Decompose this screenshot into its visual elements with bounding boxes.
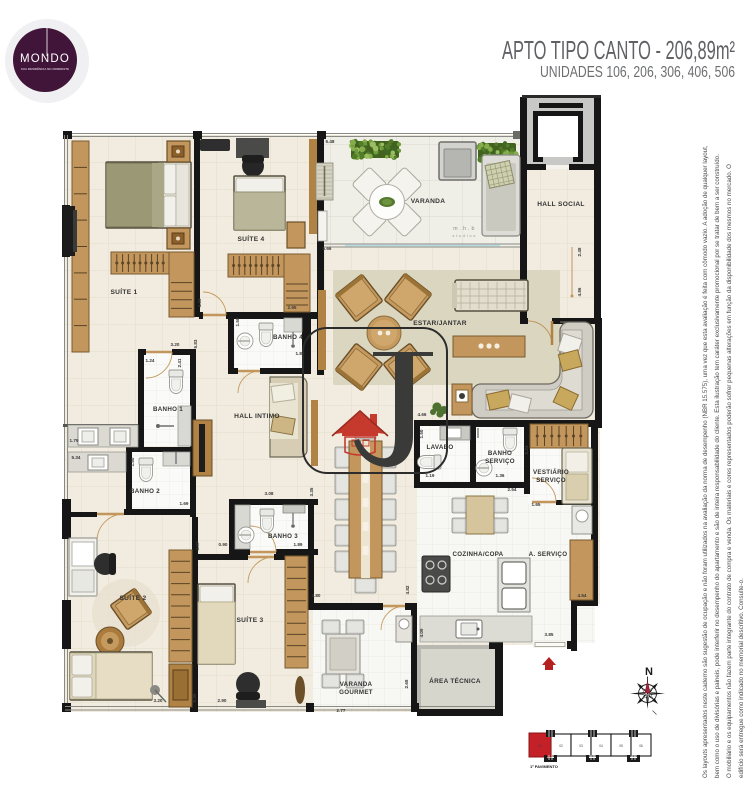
svg-text:VARANDA: VARANDA [340, 681, 373, 688]
svg-text:2.95: 2.95 [288, 305, 297, 310]
svg-text:02: 02 [559, 744, 563, 748]
svg-text:2.68: 2.68 [404, 679, 409, 688]
svg-text:2.24: 2.24 [524, 445, 529, 454]
svg-text:N: N [645, 666, 653, 678]
svg-text:1.19: 1.19 [426, 473, 435, 478]
svg-text:4.66: 4.66 [418, 412, 427, 417]
svg-text:4.54: 4.54 [578, 593, 587, 598]
svg-text:LAVABO: LAVABO [426, 444, 453, 451]
svg-text:1.79: 1.79 [70, 438, 79, 443]
svg-text:3.08: 3.08 [265, 491, 274, 496]
svg-text:UNIDADES 106, 206, 306, 406, 5: UNIDADES 106, 206, 306, 406, 506 [540, 64, 735, 81]
svg-text:1.36: 1.36 [496, 473, 505, 478]
svg-text:0.90: 0.90 [219, 542, 228, 547]
svg-text:SUÍTE 2: SUÍTE 2 [119, 593, 146, 602]
svg-text:4.09: 4.09 [419, 628, 424, 637]
svg-text:1.89: 1.89 [294, 542, 303, 547]
svg-text:SERVIÇO: SERVIÇO [485, 458, 515, 465]
svg-text:3.35: 3.35 [309, 487, 314, 496]
svg-text:4.39: 4.39 [197, 298, 202, 307]
svg-text:GOURMET: GOURMET [339, 689, 373, 696]
svg-text:SERVIÇO: SERVIÇO [536, 477, 566, 484]
svg-text:SUÍTE 4: SUÍTE 4 [237, 234, 264, 243]
svg-text:5.99: 5.99 [192, 693, 197, 702]
svg-text:ESTAR/JANTAR: ESTAR/JANTAR [413, 320, 467, 327]
svg-text:05: 05 [619, 744, 623, 748]
svg-text:01: 01 [538, 744, 542, 748]
svg-text:VARANDA: VARANDA [411, 198, 446, 205]
svg-text:BANHO 3: BANHO 3 [268, 533, 298, 540]
svg-text:m . h . b: m . h . b [453, 226, 474, 232]
svg-text:O mobiliário e os equipamentos: O mobiliário e os equipamentos não fazem… [726, 164, 733, 778]
svg-text:BANHO: BANHO [488, 450, 512, 457]
svg-text:bem como o uso de divisórias e: bem como o uso de divisórias e paineis, … [714, 154, 721, 778]
svg-text:2.48: 2.48 [577, 247, 582, 256]
svg-text:1.69: 1.69 [180, 501, 189, 506]
svg-text:HALL INTIMO: HALL INTIMO [234, 413, 280, 420]
svg-text:SUÍTE 3: SUÍTE 3 [236, 615, 263, 624]
svg-text:3.20: 3.20 [171, 342, 180, 347]
svg-text:SUA RESIDÊNCIA NO NORDESTE: SUA RESIDÊNCIA NO NORDESTE [21, 66, 69, 71]
svg-text:2.80: 2.80 [312, 593, 321, 598]
svg-text:APTO TIPO CANTO - 206,89m²: APTO TIPO CANTO - 206,89m² [502, 35, 735, 65]
svg-text:1.24: 1.24 [146, 358, 155, 363]
svg-text:3.85: 3.85 [545, 632, 554, 637]
svg-text:BANHO 1: BANHO 1 [153, 406, 183, 413]
svg-text:ÁREA TÉCNICA: ÁREA TÉCNICA [429, 676, 481, 685]
svg-text:2.77: 2.77 [337, 708, 346, 713]
svg-text:4.82: 4.82 [405, 585, 410, 594]
svg-text:1º PAVIMENTO: 1º PAVIMENTO [530, 764, 558, 769]
svg-text:BANHO 4: BANHO 4 [273, 334, 303, 341]
svg-text:1.50: 1.50 [235, 317, 240, 326]
svg-text:4.86: 4.86 [577, 287, 582, 296]
svg-text:3.20: 3.20 [154, 698, 163, 703]
svg-text:2.41: 2.41 [177, 358, 182, 367]
svg-text:BANHO 2: BANHO 2 [130, 488, 160, 495]
svg-text:5.48: 5.48 [326, 139, 335, 144]
svg-text:SUÍTE 1: SUÍTE 1 [110, 287, 137, 296]
svg-text:1.50: 1.50 [419, 429, 424, 438]
svg-text:Os layouts apresentados neste: Os layouts apresentados neste caderno sã… [702, 145, 709, 778]
svg-text:s t u d i o s: s t u d i o s [452, 233, 475, 238]
svg-text:COZINHA/COPA: COZINHA/COPA [453, 551, 504, 558]
svg-text:1.65: 1.65 [532, 502, 541, 507]
svg-text:VESTIÁRIO: VESTIÁRIO [533, 469, 569, 476]
svg-text:1.50: 1.50 [130, 457, 135, 466]
svg-text:2.54: 2.54 [508, 487, 517, 492]
svg-text:edifício será entregue como in: edifício será entregue como indicado no … [738, 578, 745, 778]
svg-text:04: 04 [599, 744, 603, 748]
svg-text:MONDO: MONDO [20, 53, 70, 65]
svg-text:3.97: 3.97 [195, 541, 200, 550]
svg-text:03: 03 [579, 744, 583, 748]
svg-text:HALL SOCIAL: HALL SOCIAL [537, 201, 585, 208]
svg-text:5.66: 5.66 [323, 246, 332, 251]
svg-text:A. SERVIÇO: A. SERVIÇO [529, 551, 568, 558]
svg-text:2.90: 2.90 [218, 698, 227, 703]
svg-text:06: 06 [639, 744, 643, 748]
svg-text:5.34: 5.34 [72, 455, 81, 460]
svg-text:5.83: 5.83 [193, 339, 198, 348]
